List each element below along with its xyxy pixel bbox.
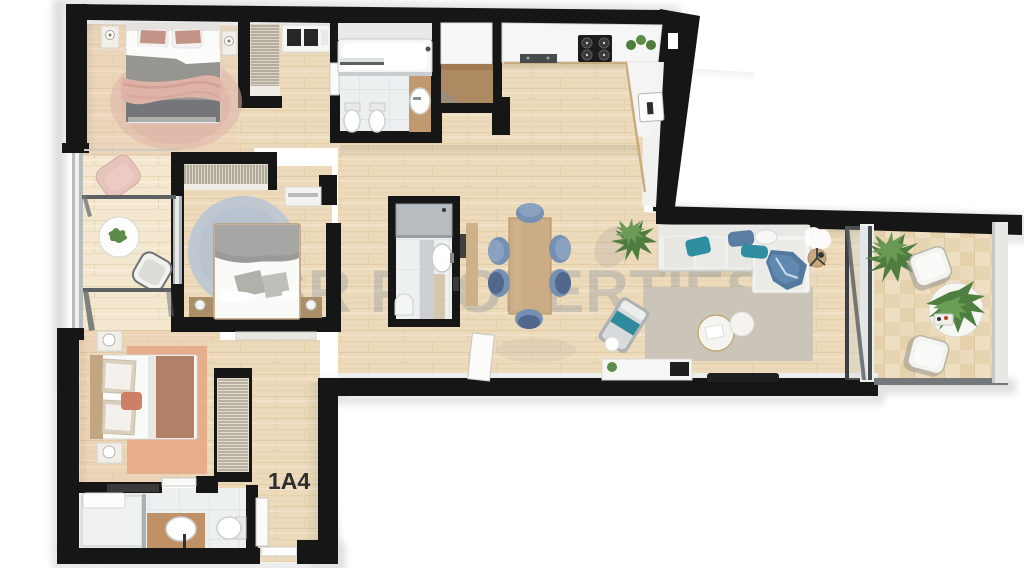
svg-text:1A4: 1A4 — [268, 468, 310, 494]
